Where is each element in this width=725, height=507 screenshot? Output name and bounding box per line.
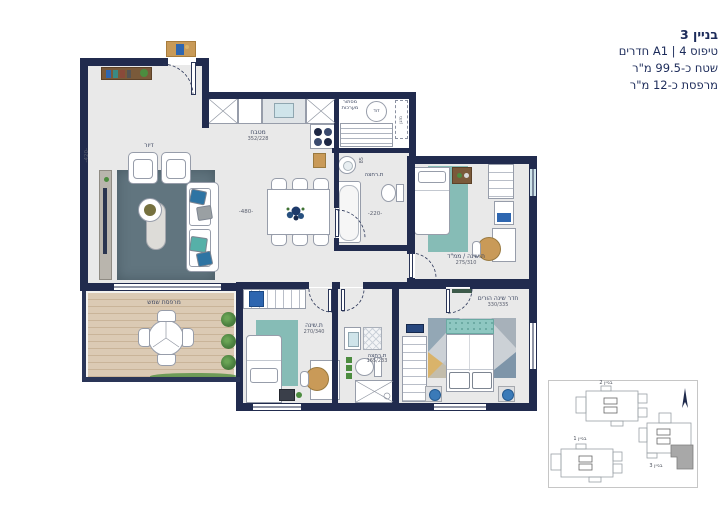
room-label-bedroom2: ת.שינה 270/340 [296,323,332,336]
north-arrow [682,388,688,408]
dim-bath1-width: -220- [362,211,388,217]
key-plan: בניין 2 בניין 1 בניין 3 [548,380,698,488]
room-label-bath1: ת.רחצה [356,172,392,178]
key-plan-drawing [549,381,697,487]
room-label-master: חדר שינה הורים 330/335 [470,296,526,309]
room-label-bath2: ת.רחצה 165/233 [358,353,396,365]
dining-flowers [287,207,305,221]
key-plan-label-building1: בניין 1 [567,436,593,442]
room-label-mamad: ת.שינה / ממ"ד 275/310 [436,254,496,267]
key-plan-highlighted-unit [671,445,693,469]
room-label-balcony: מרפסת שמש [136,300,192,307]
floorplan-page: בניין 3 טיפוס A1 | 4 חדרים שטח כ-99.5 מ"… [0,0,725,507]
dim-living-width: -480- [232,209,260,215]
dim-living-height: -420- [84,148,90,162]
room-label-living: דיור [134,143,164,150]
key-plan-label-building3: בניין 3 [643,463,669,469]
room-label-kitchen: מטבח 352/228 [234,130,282,143]
key-plan-label-building2: בניין 2 [593,380,619,386]
dim-bath1-small: 85 [359,157,365,163]
